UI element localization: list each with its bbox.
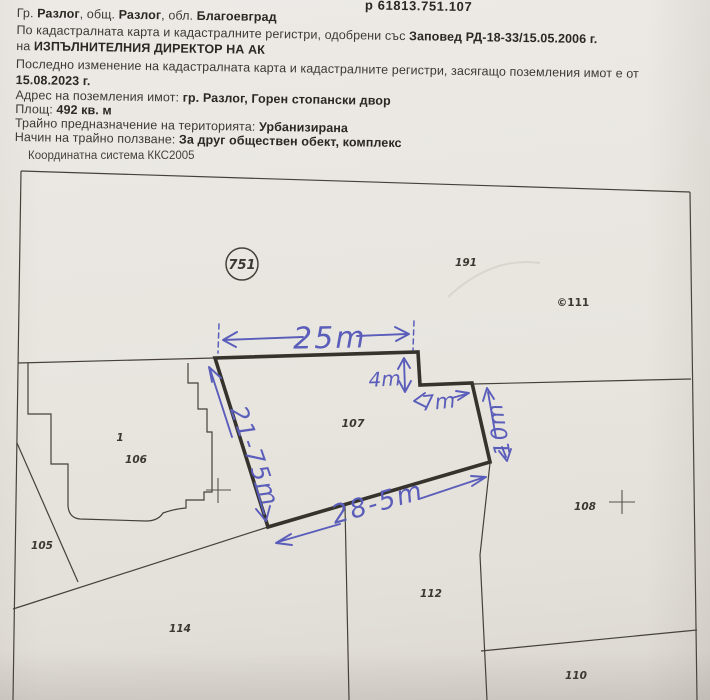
survey-cross-108 [609,490,635,514]
dimension-21-75m: 21-75m [209,367,285,521]
dimension-text-25m: 25m [293,320,367,356]
boundary-east-horizontal [473,379,691,384]
arrow-left-icon [276,524,340,545]
coordinate-system-label: Координатна система ККС2005 [28,150,195,162]
parcel-label-112: 112 [420,588,442,600]
boundary-west-horizontal [18,358,215,363]
dimension-text-7m: 7m [420,388,456,415]
parcel-label-106: 106 [125,454,147,466]
boundary-parcel-105 [17,443,78,582]
dimension-text-4m: 4m [368,366,401,392]
dimension-4m: 4m [368,358,411,392]
parcel-label-191: 191 [455,257,477,269]
boundary-114-112 [345,506,349,700]
arrow-left-icon [223,332,303,347]
dimension-tick-right [413,321,414,350]
map-border-right [690,192,697,700]
parcel-label-105: 105 [31,540,53,552]
cadastral-map: Координатна система ККС2005 751 191 ©111… [0,0,710,700]
dimension-28-5m: 28-5m [276,476,486,545]
dimension-text-21-75m: 21-75m [224,402,285,511]
parcel-label-110: 110 [565,670,587,682]
survey-cross-west [206,478,231,503]
region-number: 751 [228,258,255,273]
benchmark-label-111: ©111 [557,297,589,309]
parcel-label-114: 114 [169,623,191,635]
dimension-tick-left [218,324,219,353]
dimension-text-28-5m: 28-5m [328,476,427,531]
dimension-7m: 7m [414,388,469,415]
boundary-108-110 [481,630,697,651]
map-border-left [13,171,21,700]
boundary-112-108 [480,463,490,700]
map-border-top [21,171,690,192]
building-label-1: 1 [116,432,123,444]
parcel-label-107: 107 [342,417,365,430]
parcel-label-108: 108 [574,501,596,513]
